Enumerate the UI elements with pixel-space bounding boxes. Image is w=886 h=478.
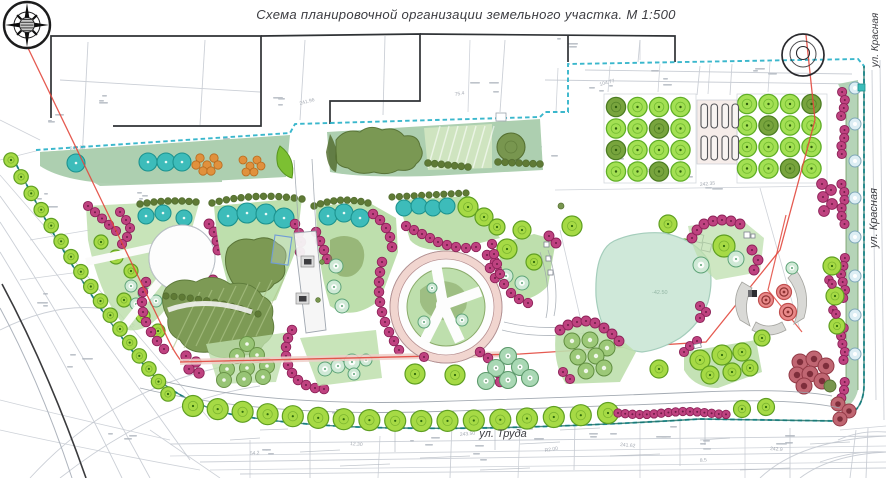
svg-text:54.2: 54.2	[250, 450, 260, 457]
svg-text:12.30: 12.30	[350, 441, 363, 448]
svg-text:R2.00: R2.00	[544, 446, 558, 454]
svg-text:Схема планировочной организаци: Схема планировочной организации земельно…	[256, 7, 676, 22]
svg-text:ул. Красная: ул. Красная	[868, 188, 880, 249]
svg-text:75.4: 75.4	[454, 90, 465, 98]
svg-text:241.62: 241.62	[620, 442, 636, 449]
svg-text:ул. Красная: ул. Красная	[870, 12, 881, 68]
svg-text:242.9: 242.9	[770, 446, 783, 453]
svg-text:104.77: 104.77	[599, 78, 616, 88]
svg-text:ул. Труда: ул. Труда	[478, 428, 527, 440]
svg-text:-42.50: -42.50	[652, 290, 668, 296]
svg-text:242.35: 242.35	[700, 181, 716, 188]
svg-text:8.5: 8.5	[700, 457, 708, 464]
svg-text:243.50: 243.50	[460, 431, 476, 438]
